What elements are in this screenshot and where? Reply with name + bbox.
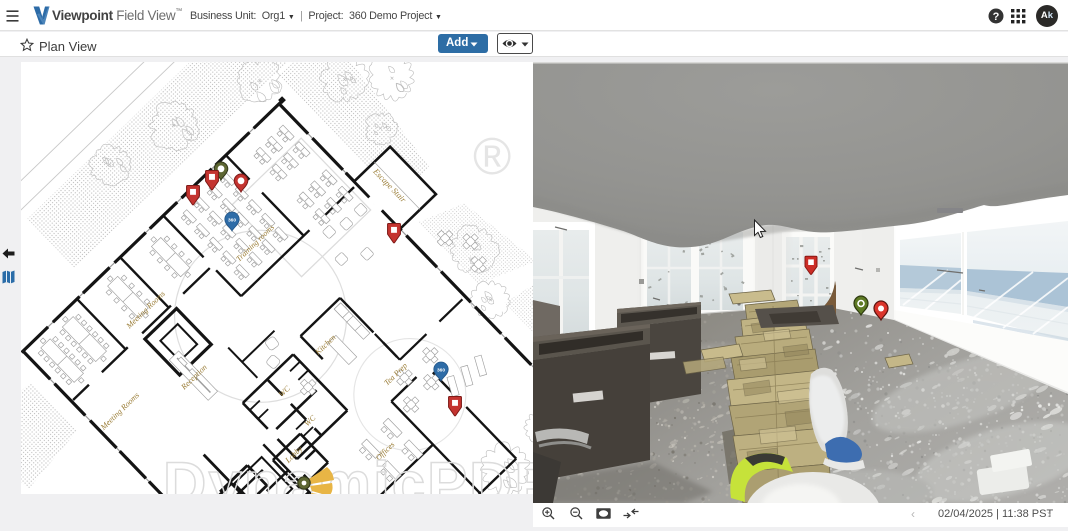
svg-text:WC: WC — [303, 413, 318, 428]
svg-text:®: ® — [473, 128, 511, 186]
svg-text:360: 360 — [228, 218, 236, 224]
svg-text:Meeting Rooms: Meeting Rooms — [98, 391, 141, 433]
svg-text:WC: WC — [277, 383, 292, 398]
svg-text:?: ? — [993, 11, 1000, 23]
svg-text:360: 360 — [437, 368, 445, 374]
svg-text:DynamicPDF: DynamicPDF — [163, 450, 533, 494]
